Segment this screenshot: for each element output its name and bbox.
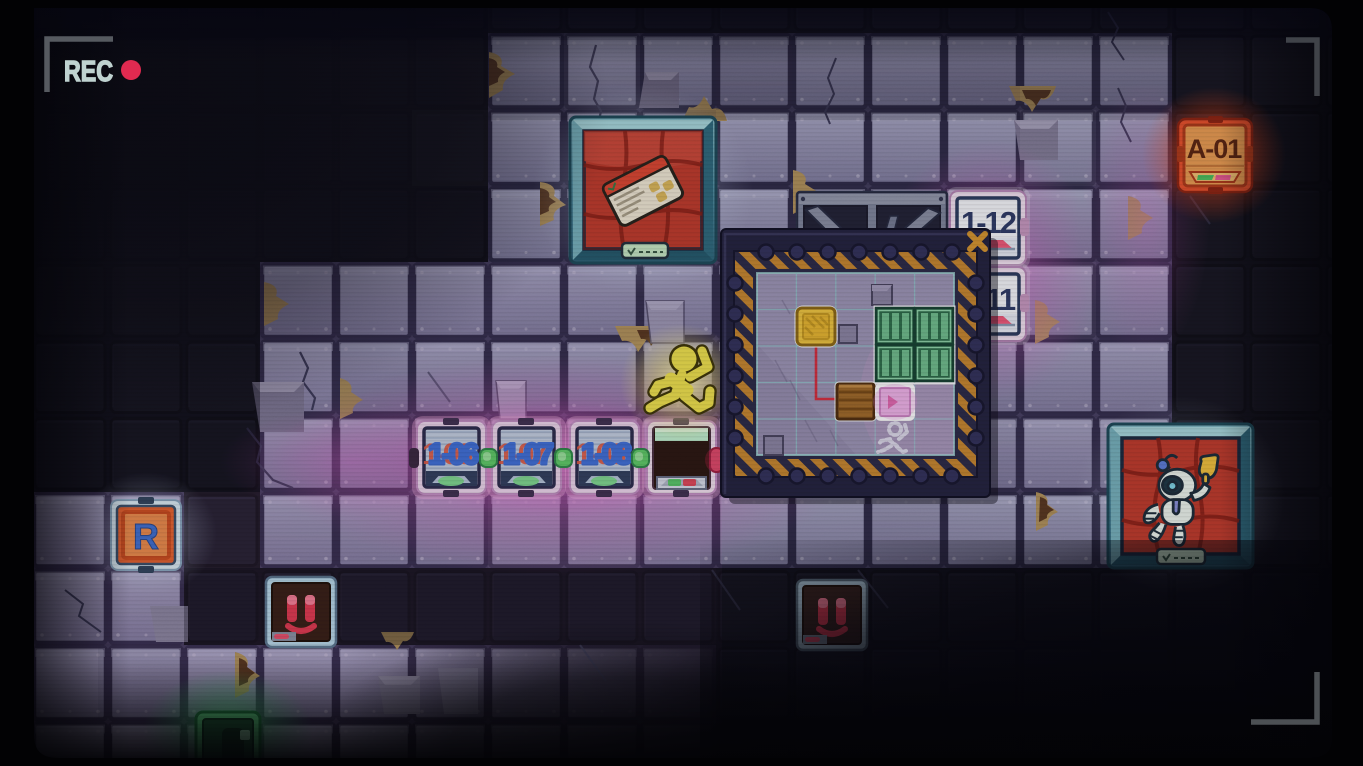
svg-text:REC: REC <box>64 56 113 88</box>
